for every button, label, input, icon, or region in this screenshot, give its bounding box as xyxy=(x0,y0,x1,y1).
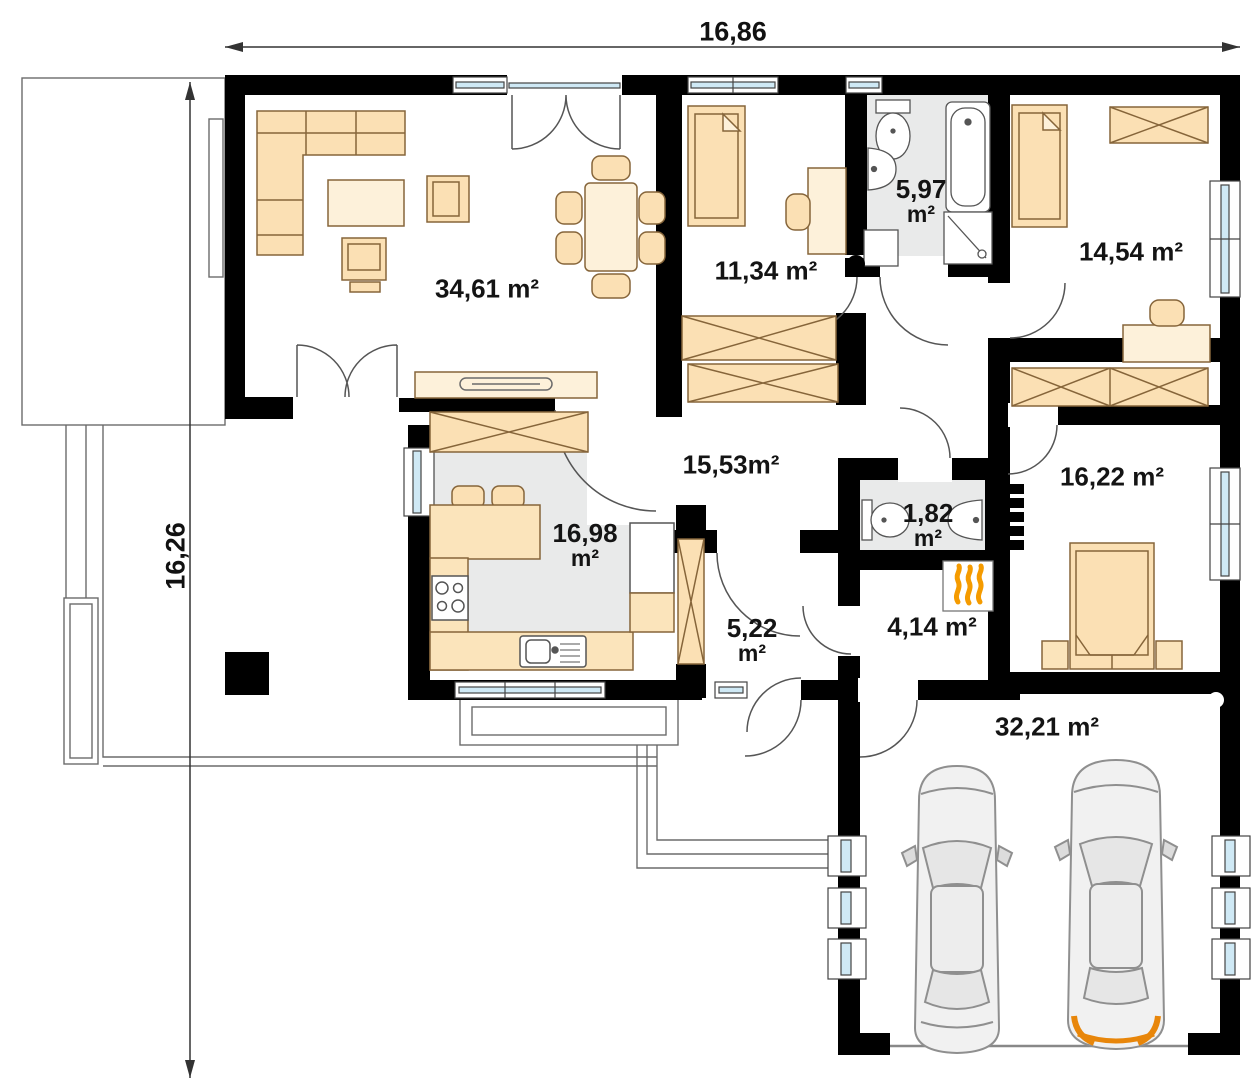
bedroom-master-door xyxy=(1008,425,1057,474)
fridge xyxy=(630,523,674,593)
room-label-bedroom-top: 11,34 m² xyxy=(715,256,818,287)
bedroom-right-door xyxy=(1010,283,1065,338)
side-mirror xyxy=(1055,840,1070,860)
kitchen-south-window xyxy=(455,682,605,698)
bedroom-top-furniture xyxy=(682,106,846,402)
wardrobe xyxy=(430,412,588,452)
bathtub xyxy=(946,102,990,212)
bathroom-door xyxy=(880,277,948,345)
nightstand xyxy=(1042,641,1068,669)
garage-column xyxy=(1208,692,1224,708)
floor-plan: 16,86 16,26 34,61 m² 11,34 m² 5,97m² 14,… xyxy=(0,0,1258,1080)
bedroom-top-window xyxy=(688,77,778,93)
armchair xyxy=(427,176,469,222)
room-label-bedroom-master: 16,22 m² xyxy=(1060,462,1164,493)
terrace-pillar xyxy=(225,652,269,695)
boiler-room xyxy=(943,561,993,611)
dimension-height-label: 16,26 xyxy=(161,522,192,590)
side-mirror xyxy=(1162,840,1177,860)
nightstand xyxy=(1156,641,1182,669)
stove xyxy=(432,576,468,620)
kitchen-peninsula xyxy=(430,505,540,559)
wardrobe xyxy=(1012,368,1208,406)
terrace-french-door xyxy=(297,345,397,397)
desk xyxy=(808,168,846,254)
dining-set xyxy=(556,156,665,298)
room-label-entry: 5,22m² xyxy=(727,615,778,665)
desk-chair xyxy=(786,194,810,230)
side-mirror xyxy=(902,846,917,866)
armchair xyxy=(342,238,386,292)
chimney-ledge xyxy=(209,119,223,277)
living-room-furniture xyxy=(257,111,665,398)
car-hatchback xyxy=(1055,760,1177,1049)
desk xyxy=(1123,325,1210,362)
planter-inner xyxy=(70,604,92,758)
bedroom-right-window xyxy=(1210,181,1240,297)
single-bed xyxy=(1012,105,1067,227)
terrace-top-left xyxy=(22,78,225,425)
garage xyxy=(902,692,1224,1053)
garage-windows xyxy=(828,836,1250,979)
entry-steps xyxy=(637,745,838,868)
living-room-window xyxy=(453,77,507,93)
desk-chair xyxy=(1150,300,1184,326)
room-label-wc: 1,82m² xyxy=(903,500,954,550)
wardrobe xyxy=(1110,107,1208,143)
tall-cabinet xyxy=(678,539,704,664)
car-sedan xyxy=(902,766,1012,1053)
wardrobe xyxy=(688,364,838,402)
room-label-boiler-room: 4,14 m² xyxy=(887,612,977,643)
arrow-down-icon xyxy=(185,1060,195,1078)
bedroom-master-window xyxy=(1210,468,1240,580)
bathroom-window xyxy=(846,77,882,93)
sideboard xyxy=(415,372,597,398)
radiator xyxy=(1008,484,1024,550)
kitchen-porch-slab xyxy=(460,697,678,745)
arrow-right-icon xyxy=(1222,42,1240,52)
dimension-width-label: 16,86 xyxy=(699,17,767,48)
double-bed xyxy=(1070,543,1154,669)
arrow-left-icon xyxy=(225,42,243,52)
room-label-garage: 32,21 m² xyxy=(995,712,1099,743)
room-label-bathroom: 5,97m² xyxy=(896,176,947,226)
single-bed xyxy=(688,106,745,226)
garage-access-door xyxy=(860,700,917,757)
pantry-cabinet xyxy=(630,593,674,632)
front-door-outer xyxy=(745,700,801,756)
living-french-door xyxy=(512,95,620,149)
washing-machine xyxy=(864,230,898,266)
wall-column xyxy=(847,255,865,273)
wc-door xyxy=(900,408,950,458)
entry-window xyxy=(715,682,747,698)
coffee-table xyxy=(328,180,404,226)
room-label-kitchen: 16,98m² xyxy=(552,520,617,570)
room-label-hall: 15,53m² xyxy=(683,450,780,481)
room-label-bedroom-right: 14,54 m² xyxy=(1079,237,1183,268)
kitchen-sink xyxy=(520,636,586,667)
french-door-sill xyxy=(509,83,620,88)
wardrobe xyxy=(682,316,836,360)
walkway xyxy=(66,425,86,598)
room-label-living-room: 34,61 m² xyxy=(435,274,539,305)
side-mirror xyxy=(997,846,1012,866)
planter xyxy=(64,598,98,764)
shower xyxy=(944,212,992,264)
bedroom-right-furniture xyxy=(1012,105,1210,362)
